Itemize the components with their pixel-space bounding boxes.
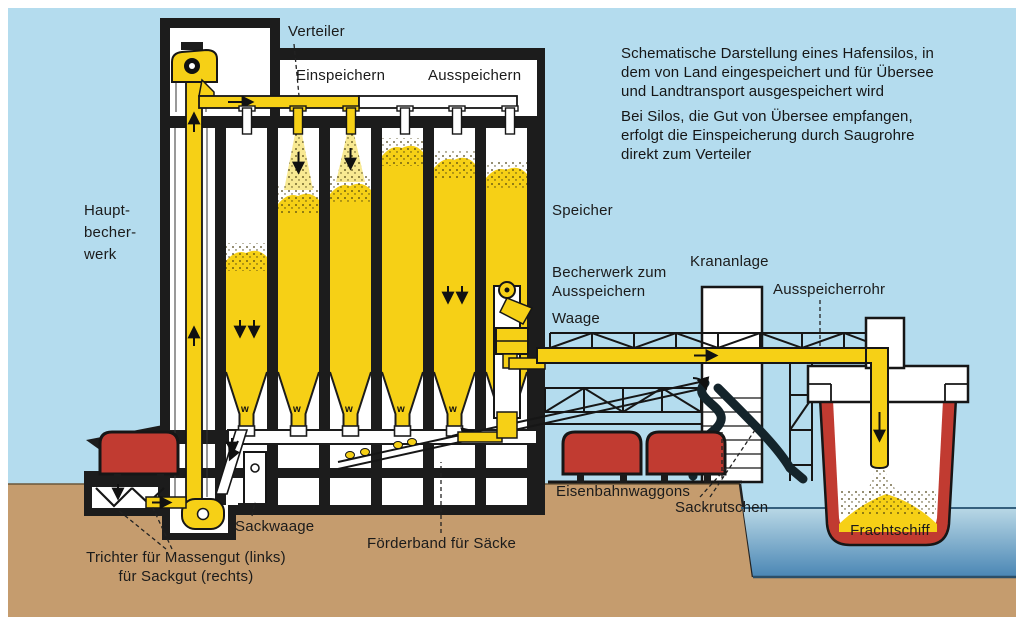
info-line: Schematische Darstellung eines Hafensilo…	[621, 44, 934, 63]
label-krananlage: Krananlage	[690, 253, 769, 272]
harbor-silo-diagram: w w w w w	[0, 0, 1024, 625]
label-hauptbecherwerk: Haupt- becher- werk	[84, 200, 136, 266]
wagon	[563, 432, 641, 474]
label-ausspeichern: Ausspeichern	[428, 67, 521, 86]
label-trichter: Trichter für Massengut (links) für Sackg…	[60, 549, 312, 587]
label-verteiler: Verteiler	[288, 23, 345, 42]
label-waage: Waage	[552, 310, 600, 329]
info-line: und Landtransport ausgespeichert wird	[621, 82, 934, 101]
info-line: dem von Land eingespeichert und für Über…	[621, 63, 934, 82]
info-line: erfolgt die Einspeicherung durch Saugroh…	[621, 126, 934, 145]
label-ausspeicherrohr: Ausspeicherrohr	[773, 281, 885, 300]
label-frachtschiff: Frachtschiff	[845, 522, 935, 541]
label-speicher: Speicher	[552, 202, 613, 221]
wagon	[647, 432, 725, 474]
label-sackwaage: Sackwaage	[235, 518, 314, 537]
label-sackrutschen: Sackrutschen	[675, 499, 768, 518]
info-line: Bei Silos, die Gut von Übersee empfangen…	[621, 107, 934, 126]
label-becherwerk-ausspeichern: Becherwerk zum Ausspeichern	[552, 264, 667, 302]
info-line: direkt zum Verteiler	[621, 145, 934, 164]
svg-text:w: w	[240, 404, 249, 415]
svg-text:w: w	[292, 404, 301, 415]
svg-text:w: w	[396, 404, 405, 415]
label-foerderband: Förderband für Säcke	[367, 535, 516, 554]
svg-text:w: w	[448, 404, 457, 415]
label-eisenbahnwaggons: Eisenbahnwaggons	[556, 483, 690, 502]
label-einspeichern: Einspeichern	[296, 67, 385, 86]
info-text: Schematische Darstellung eines Hafensilo…	[621, 44, 934, 164]
wagon	[100, 432, 178, 474]
svg-text:w: w	[344, 404, 353, 415]
